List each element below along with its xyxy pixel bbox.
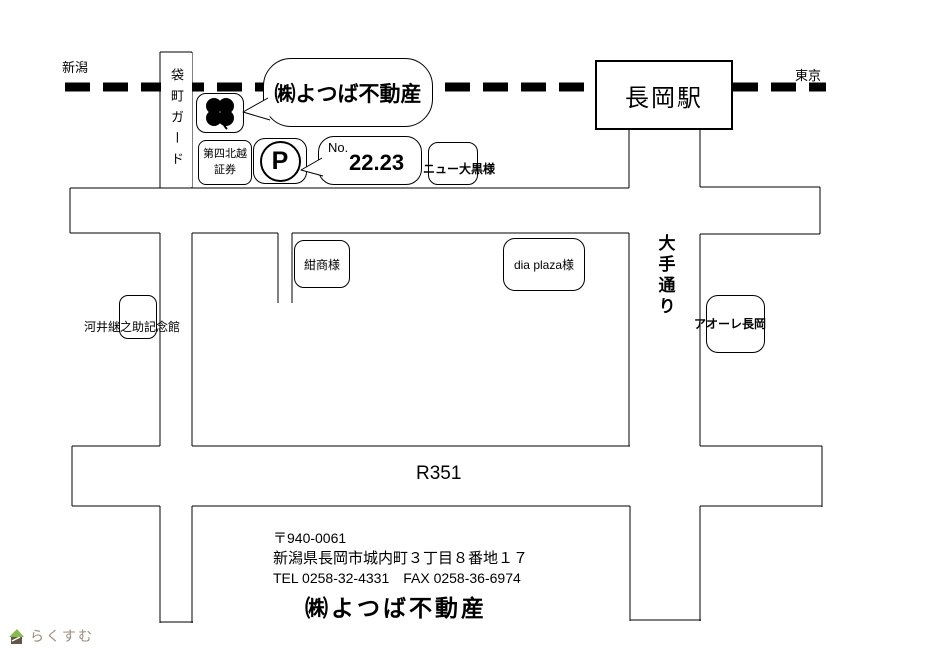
footer-telfax: TEL 0258-32-4331 FAX 0258-36-6974 [273, 568, 521, 588]
rakusumu-logo-icon [8, 628, 25, 645]
access-map: 新潟 東京 袋町ガード 長岡駅 ㈱よつば不動産 第四北越 証券 P No. 22… [0, 0, 942, 648]
aore-label: アオーレ長岡 [694, 318, 766, 330]
footer-address: 新潟県長岡市城内町３丁目８番地１７ [273, 547, 528, 568]
nagaoka-station-box: 長岡駅 [595, 60, 733, 130]
company-bubble-tail [238, 94, 278, 126]
securities-line1: 第四北越 [203, 147, 247, 163]
securities-box: 第四北越 証券 [198, 140, 252, 185]
footer-company-name: ㈱よつば不動産 [305, 589, 487, 623]
parking-no-label: No. [328, 141, 348, 154]
clover-logo-box [196, 93, 244, 133]
ote-dori-label: 大手通り [652, 233, 678, 319]
route-351-label: R351 [416, 464, 461, 483]
kawai-memorial-label: 河井継之助記念館 [84, 321, 180, 333]
rail-right-label: 東京 [795, 69, 821, 82]
footer-postal: 〒940-0061 [273, 528, 346, 548]
rakusumu-watermark: らくすむ [8, 626, 94, 646]
parking-bubble-tail [296, 152, 328, 182]
parking-icon: P [260, 141, 301, 182]
konsho-box: 紺商様 [294, 240, 350, 288]
rail-left-label: 新潟 [62, 61, 88, 74]
company-bubble: ㈱よつば不動産 [263, 58, 433, 127]
clover-icon [200, 95, 240, 131]
parking-no-value: 22.23 [349, 152, 404, 174]
securities-line2: 証券 [203, 163, 247, 179]
rakusumu-logo-text: らくすむ [30, 626, 94, 646]
dia-plaza-box: dia plaza様 [503, 238, 585, 291]
fukuromachi-guard-label: 袋町ガード [161, 53, 192, 187]
parking-no-bubble: No. 22.23 [318, 136, 422, 185]
new-daikoku-label: ニュー大黒様 [423, 163, 495, 175]
